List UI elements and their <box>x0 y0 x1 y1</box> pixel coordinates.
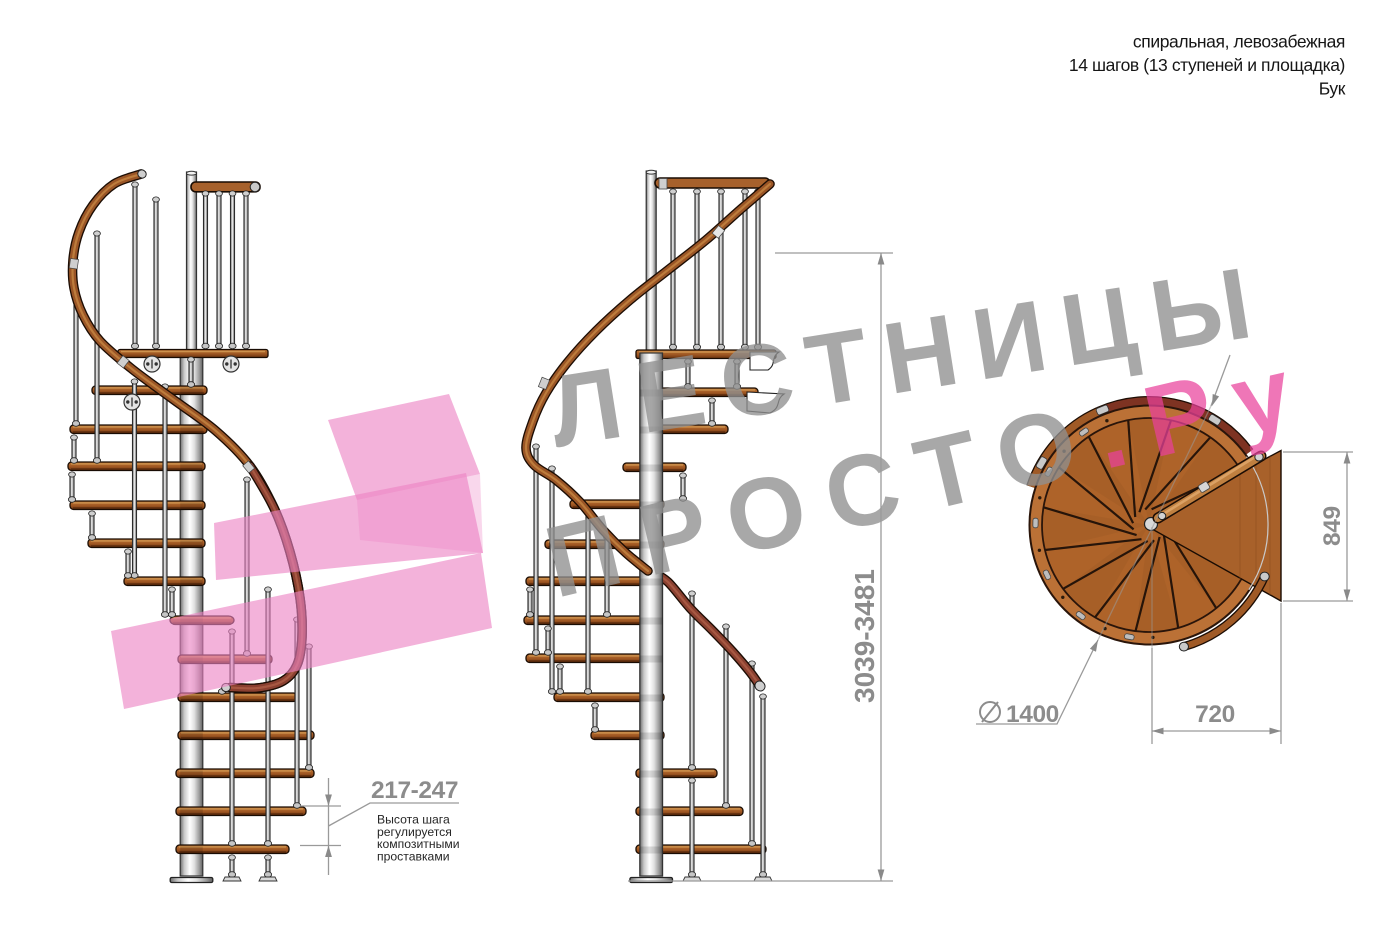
svg-text:спиральная, левозабежная: спиральная, левозабежная <box>1133 32 1345 52</box>
svg-text:14 шагов (13 ступеней и площад: 14 шагов (13 ступеней и площадка) <box>1069 55 1345 75</box>
svg-text:проставками: проставками <box>377 849 450 863</box>
svg-text:849: 849 <box>1319 506 1346 546</box>
svg-text:Бук: Бук <box>1319 79 1346 99</box>
svg-text:3039-3481: 3039-3481 <box>849 569 880 703</box>
svg-text:217-247: 217-247 <box>371 777 458 804</box>
svg-text:1400: 1400 <box>1006 701 1059 728</box>
svg-text:720: 720 <box>1195 701 1235 728</box>
